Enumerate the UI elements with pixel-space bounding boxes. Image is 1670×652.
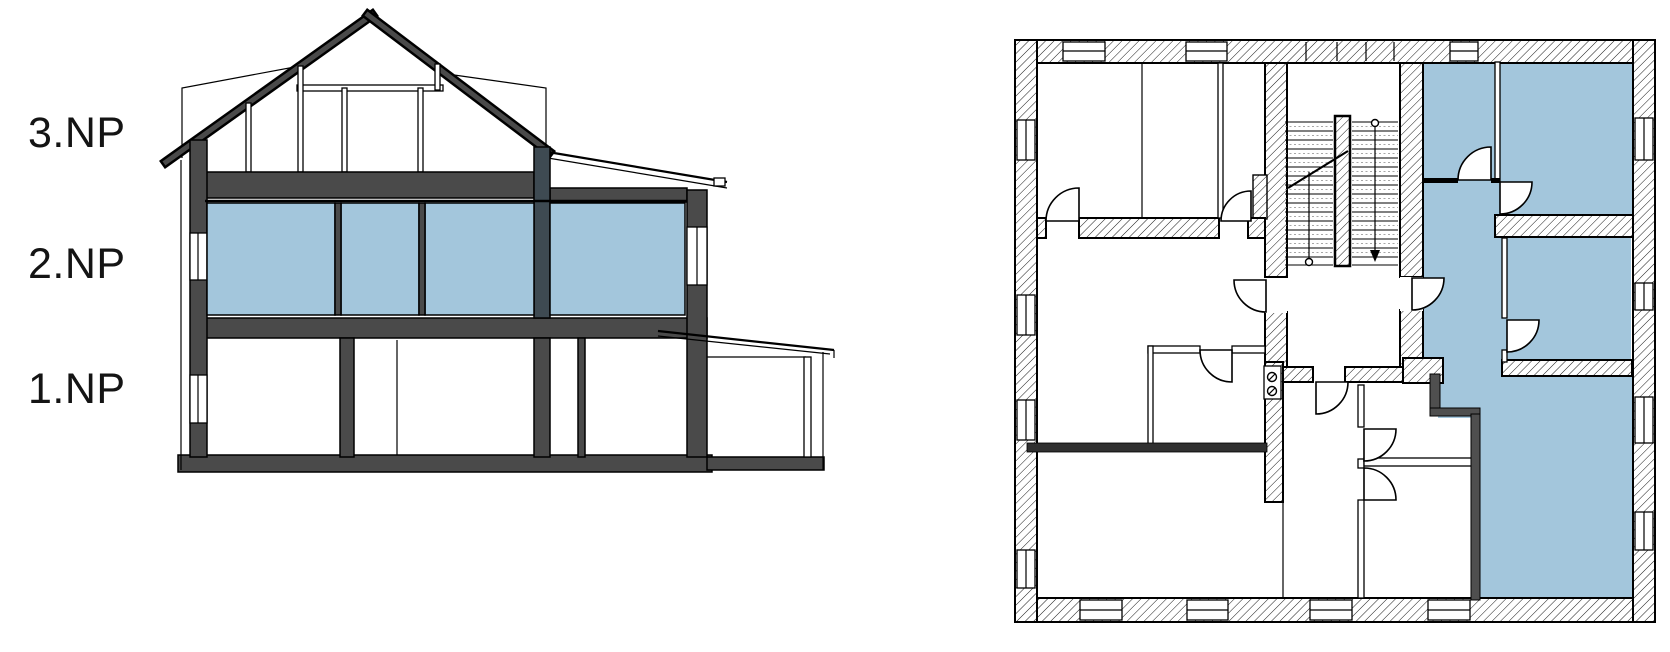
- door-landing-to-lower-hall: [1316, 382, 1348, 414]
- door-landing-to-left-apartment: [1234, 280, 1266, 312]
- glazing-panel: [550, 203, 685, 315]
- vent-shaft-symbol: [1264, 366, 1281, 399]
- glazing-panel: [425, 203, 534, 315]
- glazing-panel: [341, 203, 419, 315]
- outer-wall-top: [1015, 40, 1655, 63]
- ground-slab: [178, 455, 712, 472]
- door-top-left-room: [1046, 188, 1079, 221]
- section-low-roof: [536, 150, 727, 188]
- partition-top-left: [1218, 63, 1223, 218]
- building-section: [166, 15, 834, 472]
- door-inner-small-room: [1200, 350, 1232, 382]
- solid-wall-bottom-left: [1027, 443, 1267, 452]
- highlighted-hallway: [1423, 170, 1503, 373]
- section-annex: [658, 331, 834, 470]
- stairwell-wall-left: [1265, 63, 1287, 277]
- glazing-panel: [207, 203, 335, 315]
- partition-blue-rooms: [1495, 62, 1500, 181]
- door-center-room-lower: [1364, 468, 1396, 500]
- annex-right-wall: [804, 357, 811, 457]
- attic-floor-slab: [197, 172, 534, 198]
- section-2np-glazing: [205, 201, 687, 315]
- plan-staircase: [1285, 116, 1398, 266]
- stairwell-wall-right: [1400, 63, 1423, 277]
- mullion: [419, 203, 425, 315]
- door-opening: [1265, 278, 1287, 313]
- annex-ground-slab: [707, 457, 824, 470]
- center-pier: [534, 147, 550, 318]
- architectural-drawing-canvas: [0, 0, 1670, 652]
- mullion: [335, 203, 341, 315]
- stair-center-wall: [1335, 116, 1350, 266]
- door-top-second-room: [1221, 191, 1251, 221]
- second-floor-slab: [195, 318, 707, 338]
- highlighted-room-bottom-right: [1478, 370, 1633, 600]
- door-center-room-upper: [1364, 429, 1396, 461]
- floor-plan: [1015, 40, 1655, 622]
